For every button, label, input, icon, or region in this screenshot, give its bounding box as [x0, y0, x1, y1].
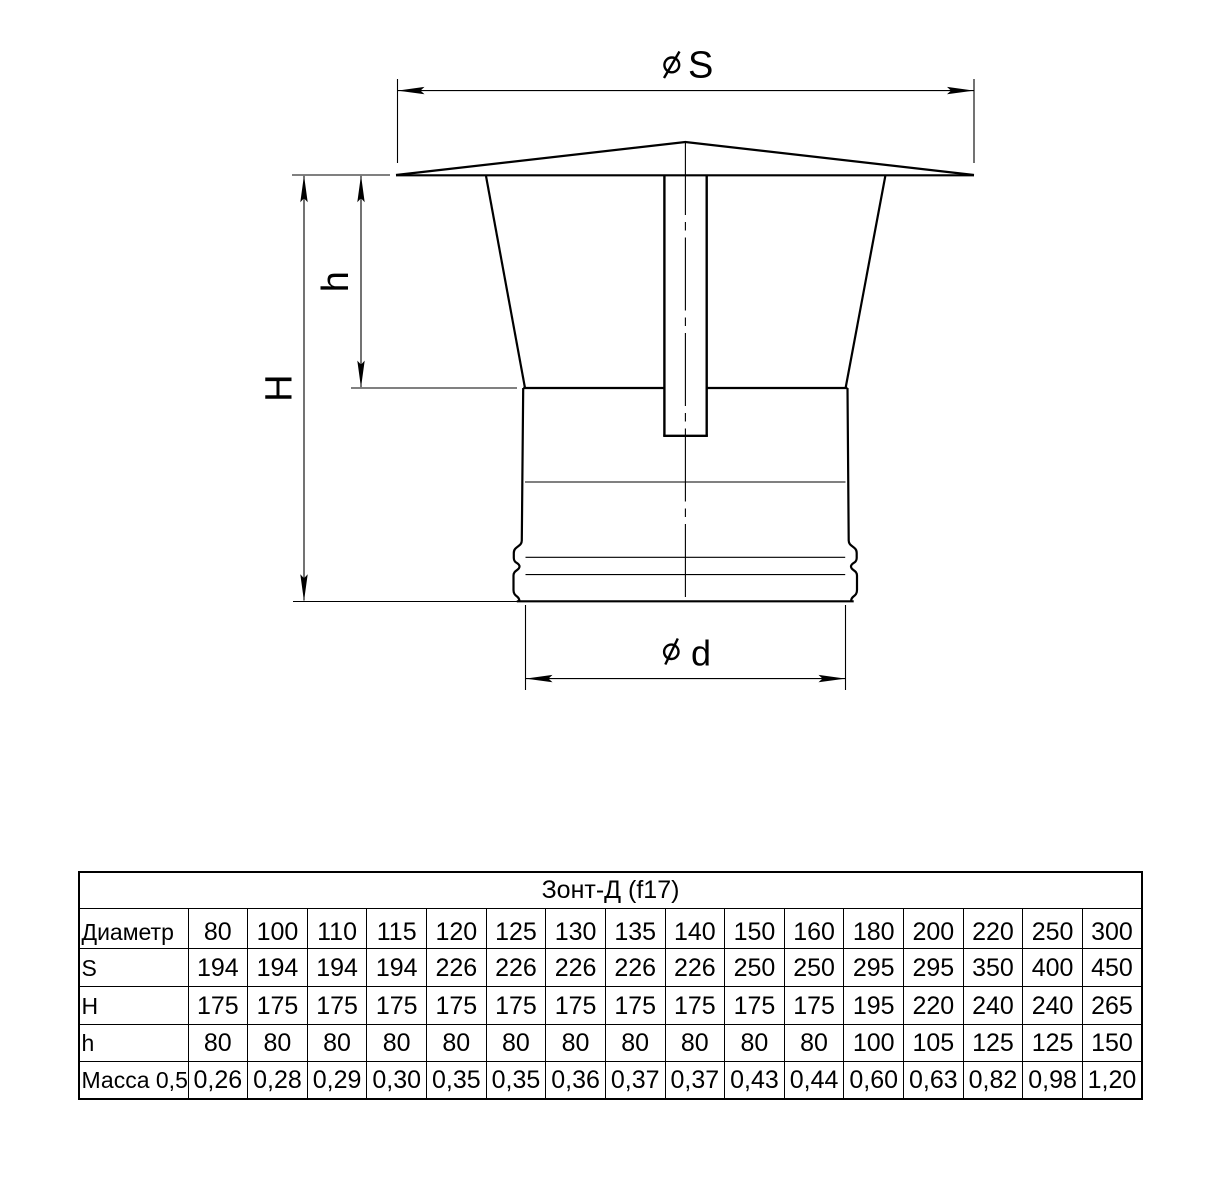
svg-text:H: H	[259, 374, 301, 401]
svg-text:h: h	[315, 271, 357, 292]
svg-text:S: S	[688, 45, 713, 87]
svg-text:d: d	[691, 633, 711, 674]
